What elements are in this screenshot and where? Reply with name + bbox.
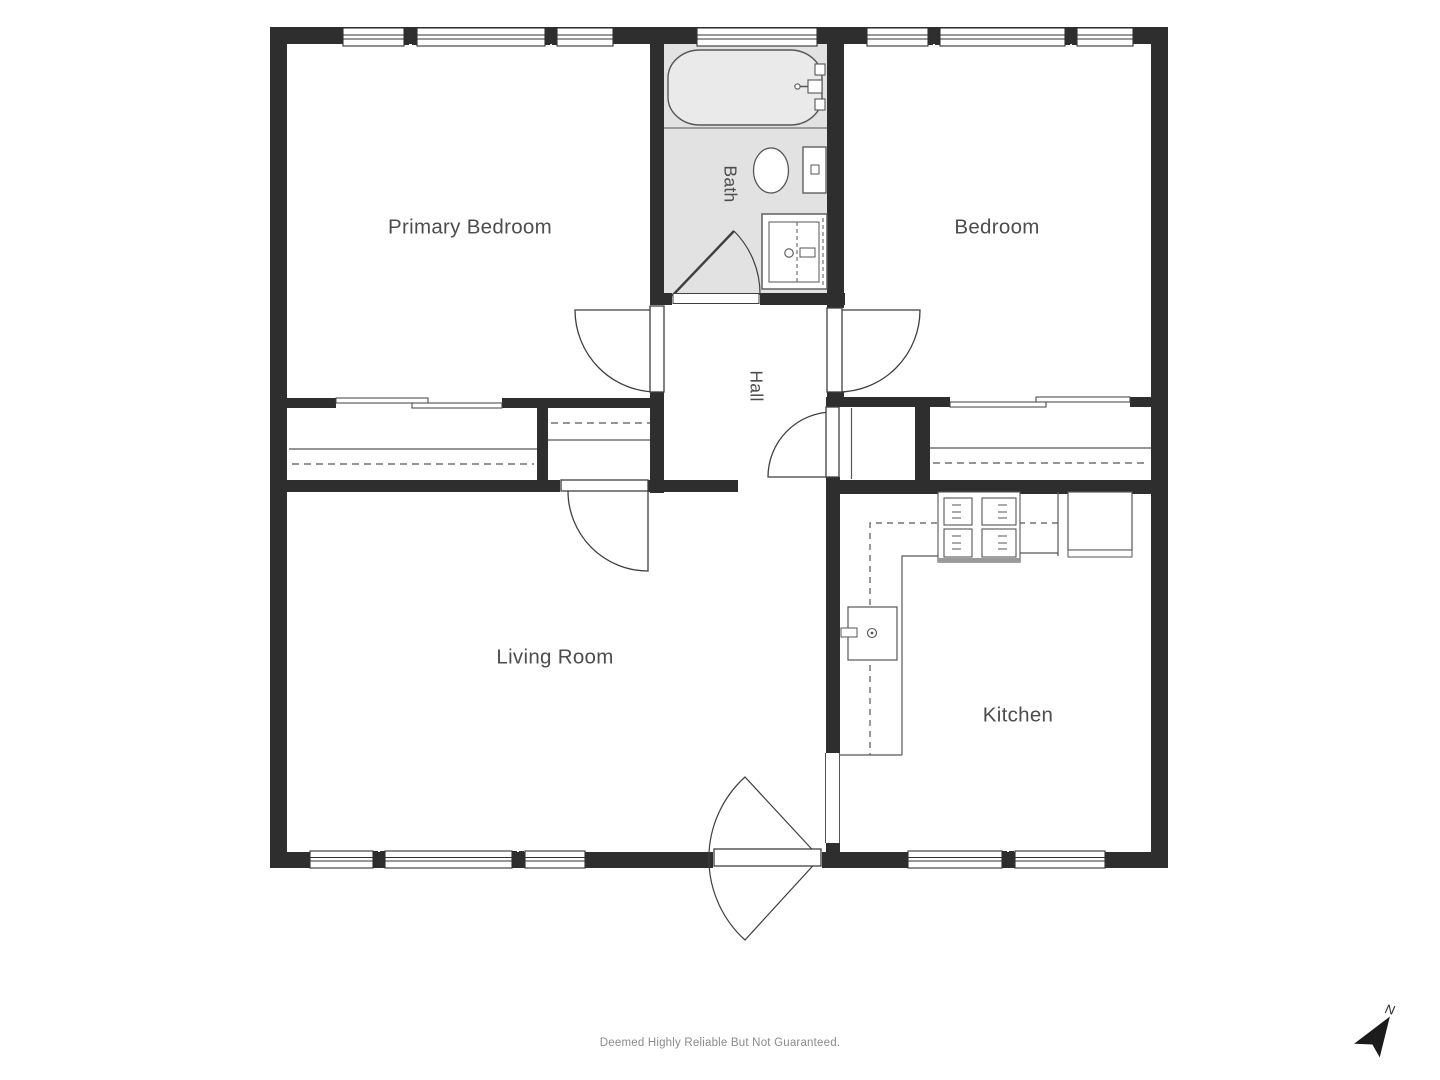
disclaimer-text: Deemed Highly Reliable But Not Guarantee… xyxy=(600,1037,840,1049)
sliding-door-panel xyxy=(412,403,502,408)
wall-left xyxy=(270,27,287,868)
north-label: N xyxy=(1384,1001,1397,1018)
wall-living-room-top xyxy=(270,480,738,492)
stove-icon xyxy=(938,492,1020,562)
sliding-door-panel xyxy=(336,398,428,403)
room-label-primary-bedroom: Primary Bedroom xyxy=(388,215,552,238)
window xyxy=(908,851,1002,868)
door-swing-front-entry xyxy=(709,777,821,940)
bathtub-icon xyxy=(668,50,825,125)
wall-bath-left xyxy=(650,44,664,493)
doors xyxy=(561,231,920,940)
room-label-bath: Bath xyxy=(720,165,740,202)
window xyxy=(867,28,928,46)
vanity-sink-icon xyxy=(762,214,827,289)
wall-openings xyxy=(336,293,1130,868)
compass-north-icon: N xyxy=(1354,1001,1401,1059)
door-swing-primary-bedroom xyxy=(575,306,664,392)
window xyxy=(310,851,373,868)
window xyxy=(417,28,545,46)
window xyxy=(1015,851,1105,868)
window xyxy=(940,28,1065,46)
wall-right xyxy=(1151,27,1168,868)
sliding-door-panel xyxy=(1036,397,1130,402)
wall-closet-divider-left xyxy=(537,408,548,480)
door-swing-closet xyxy=(561,480,648,571)
room-label-living-room: Living Room xyxy=(496,645,613,668)
closet-interior-lines xyxy=(289,408,1151,479)
kitchen-sink-icon xyxy=(841,607,897,660)
door-swing-bedroom xyxy=(827,308,920,392)
room-label-hall: Hall xyxy=(746,370,766,401)
room-label-bedroom: Bedroom xyxy=(954,215,1039,238)
window xyxy=(697,28,817,46)
window xyxy=(385,851,512,868)
wall-stub-passage xyxy=(826,843,840,852)
counter-edge xyxy=(902,556,938,755)
door-swing-hall-closet xyxy=(768,407,839,477)
room-label-kitchen: Kitchen xyxy=(983,703,1053,726)
refrigerator-icon xyxy=(1068,492,1132,557)
floor-plan-page: Primary Bedroom Bedroom Living Room Kitc… xyxy=(0,0,1440,1080)
window xyxy=(1077,28,1133,46)
window xyxy=(557,28,613,46)
sliding-door-panel xyxy=(950,402,1046,407)
floor-plan-canvas: Primary Bedroom Bedroom Living Room Kitc… xyxy=(0,0,1440,1080)
window xyxy=(525,851,585,868)
window xyxy=(343,28,404,46)
wall-closet-divider-right xyxy=(915,407,930,480)
